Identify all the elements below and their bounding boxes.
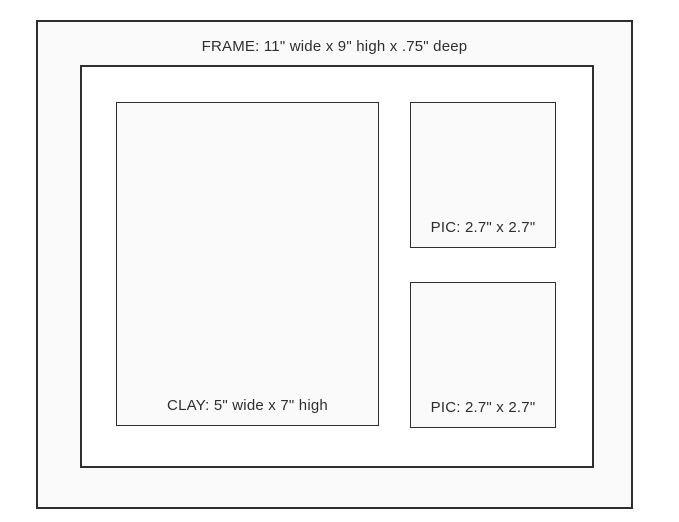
pic-area-top: PIC: 2.7" x 2.7"	[410, 102, 556, 248]
clay-area: CLAY: 5" wide x 7" high	[116, 102, 379, 426]
frame-layout-diagram: FRAME: 11" wide x 9" high x .75" deep CL…	[0, 0, 679, 522]
pic-bottom-dimensions-label: PIC: 2.7" x 2.7"	[411, 399, 555, 416]
pic-top-dimensions-label: PIC: 2.7" x 2.7"	[411, 219, 555, 236]
clay-dimensions-label: CLAY: 5" wide x 7" high	[117, 397, 378, 414]
pic-area-bottom: PIC: 2.7" x 2.7"	[410, 282, 556, 428]
frame-dimensions-label: FRAME: 11" wide x 9" high x .75" deep	[36, 38, 633, 55]
